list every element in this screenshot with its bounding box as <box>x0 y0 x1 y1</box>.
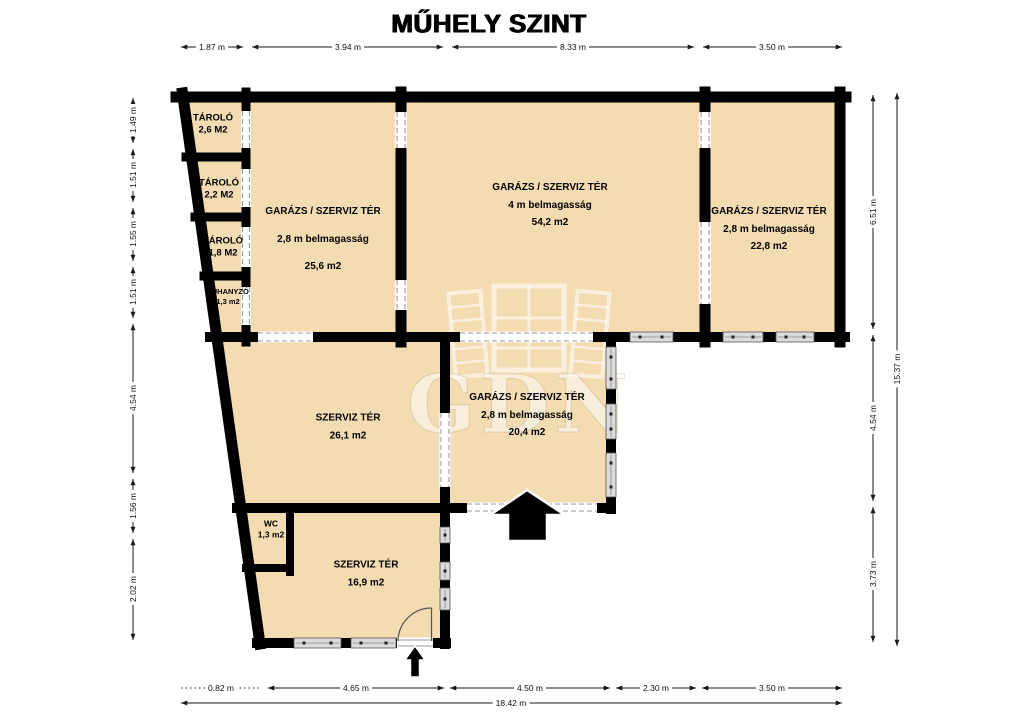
dim-left-4: 1.51 m <box>128 276 138 308</box>
room-label-tarolo-3: TÁROLÓ1,8 M2 <box>203 237 243 260</box>
dim-bottom-2: 4.65 m <box>340 683 372 693</box>
room-label-zuhanyzo: ZUHANYZÓ1,3 m2 <box>207 288 249 306</box>
room-label-tarolo-2: TÁROLÓ2,2 M2 <box>199 179 239 202</box>
dim-top-3: 8.33 m <box>557 42 589 52</box>
room-label-garazs-20: GARÁZS / SZERVIZ TÉR2,8 m belmagasság20,… <box>469 392 584 439</box>
room-label-wc: WC1,3 m2 <box>258 520 284 541</box>
room-label-garazs-54: GARÁZS / SZERVIZ TÉR4 m belmagasság54,2 … <box>492 182 607 229</box>
dim-right-1: 6.51 m <box>868 196 878 228</box>
dim-left-5: 4.54 m <box>128 382 138 414</box>
dim-left-6: 1.56 m <box>128 490 138 522</box>
dim-right-2: 4.54 m <box>868 402 878 434</box>
room-label-szerviz-16: SZERVIZ TÉR16,9 m2 <box>334 560 399 589</box>
room-label-garazs-25: GARÁZS / SZERVIZ TÉR2,8 m belmagasság25,… <box>265 206 380 273</box>
dim-bottom-5: 3.50 m <box>756 683 788 693</box>
dim-left-1: 1.49 m <box>128 104 138 136</box>
dim-bottom-4: 2.30 m <box>640 683 672 693</box>
dim-bottom-3: 4.50 m <box>514 683 546 693</box>
floorplan-canvas: MŰHELY SZINT GDN <box>0 0 1024 724</box>
room-label-tarolo-1: TÁROLÓ2,6 M2 <box>193 114 233 137</box>
dim-bottom-total: 18.42 m <box>493 698 530 708</box>
dim-left-2: 1.51 m <box>128 159 138 191</box>
dim-bottom-1: 0.82 m <box>205 683 237 693</box>
dim-top-2: 3.94 m <box>332 42 364 52</box>
dim-left-7: 2.02 m <box>128 573 138 605</box>
side-entrance-arrow-icon <box>405 646 425 677</box>
dim-right-3: 3.73 m <box>868 558 878 590</box>
room-label-szerviz-26: SZERVIZ TÉR26,1 m2 <box>316 413 381 442</box>
dim-left-3: 1.55 m <box>128 218 138 250</box>
dim-right-total: 15.37 m <box>892 351 902 388</box>
dim-top-1: 1.87 m <box>196 42 228 52</box>
room-label-garazs-22: GARÁZS / SZERVIZ TÉR2,8 m belmagasság22,… <box>711 206 826 253</box>
dim-top-4: 3.50 m <box>756 42 788 52</box>
floorplan-drawing: GDN <box>0 0 1024 724</box>
